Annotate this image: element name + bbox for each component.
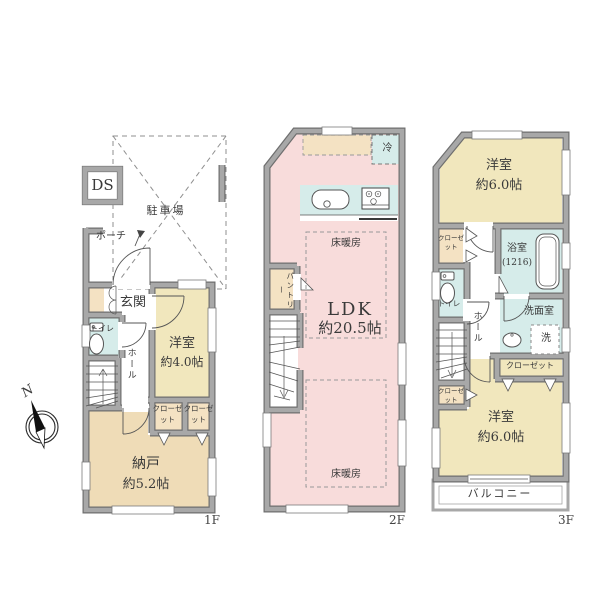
closet-lower-label: クローゼット xyxy=(438,387,464,405)
floor-heating-upper-label: 床暖房 xyxy=(310,238,382,250)
closet-upper-label: クローゼット xyxy=(438,234,464,252)
porch-arrow-icon xyxy=(135,230,145,246)
toilet1-label: トイレ xyxy=(84,324,120,333)
floorplan-page: DS 駐車場 ポーチ 玄関 トイレ ホール 洋室 約4.0帖 クローゼット クロ… xyxy=(0,0,600,600)
ds-label: DS xyxy=(86,177,119,195)
sink-icon xyxy=(312,190,349,209)
floor2-label: 2F xyxy=(381,513,413,527)
floorplan-drawing xyxy=(0,0,600,600)
floor3-label: 3F xyxy=(550,513,582,527)
floor1-label: 1F xyxy=(196,513,228,527)
stove-icon xyxy=(362,188,389,209)
kitchen-counter xyxy=(300,185,398,221)
hall3-label: ホール xyxy=(471,305,482,349)
bedroom-lower-size: 約6.0帖 xyxy=(462,430,540,445)
bath-size: (1216) xyxy=(495,258,539,269)
kitchen-cupboard xyxy=(303,135,371,155)
washer-label: 洗 xyxy=(538,333,554,345)
floor-heating-lower-label: 床暖房 xyxy=(310,469,382,481)
porch-label: ポーチ xyxy=(86,231,136,243)
bedroom-lower-name: 洋室 xyxy=(462,410,540,425)
hall1-label: ホール xyxy=(125,342,136,386)
floor3-stairs xyxy=(436,330,467,378)
fridge-label: 冷 xyxy=(373,143,402,155)
compass-north-needle xyxy=(31,400,45,432)
compass xyxy=(26,400,58,448)
bedroom-upper-size: 約6.0帖 xyxy=(460,178,538,193)
bath-name: 浴室 xyxy=(497,243,537,255)
storage-size: 約5.2帖 xyxy=(108,477,184,492)
parking-label: 駐車場 xyxy=(124,205,208,218)
washroom-label: 洗面室 xyxy=(508,306,570,318)
floor1-stairs xyxy=(86,366,118,408)
washbasin-icon xyxy=(503,333,521,347)
ldk-name: LDK xyxy=(314,299,386,320)
toilet3-label: トイレ xyxy=(433,300,465,309)
bedroom-upper-name: 洋室 xyxy=(460,158,538,173)
closet1b-label: クローゼット xyxy=(182,404,215,425)
bedroom1-name: 洋室 xyxy=(146,336,218,351)
ldk-size: 約20.5帖 xyxy=(306,320,394,338)
closet1a-label: クローゼット xyxy=(151,404,184,425)
pantry-label: パントリー xyxy=(276,270,294,312)
shoe-cabinet xyxy=(87,285,104,313)
bedroom1-size: 約4.0帖 xyxy=(146,355,218,369)
balcony-label: バルコニー xyxy=(455,488,545,501)
storage-name: 納戸 xyxy=(108,456,184,473)
entrance-label: 玄関 xyxy=(106,295,160,310)
closet-middle-label: クローゼット xyxy=(498,361,562,370)
bathtub-icon xyxy=(536,234,559,289)
